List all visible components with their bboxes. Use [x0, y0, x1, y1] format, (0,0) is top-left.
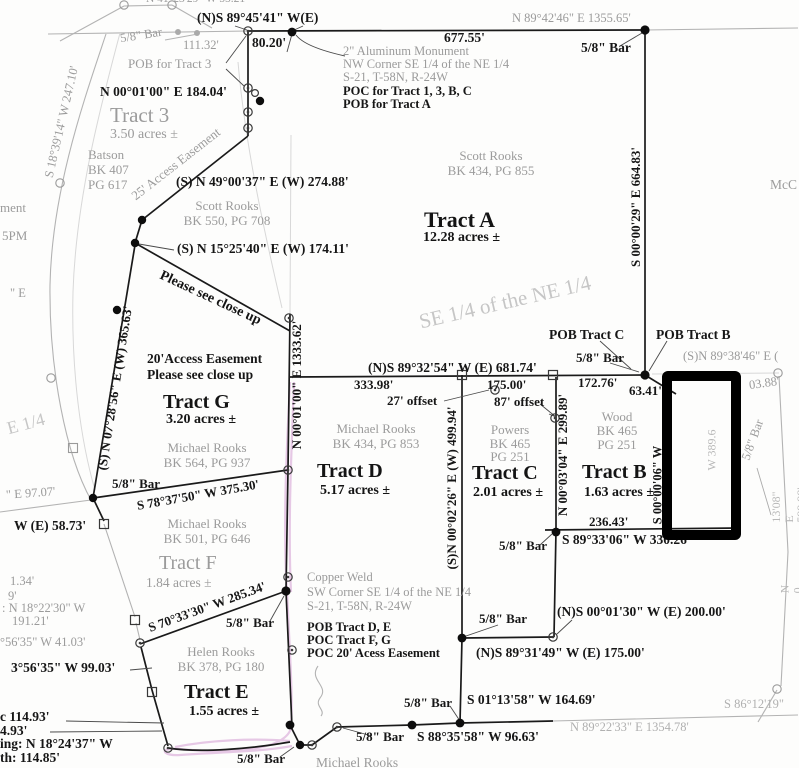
note-access-easement-20: 20'Access Easement Please see close up: [147, 351, 262, 382]
label-bar-top-right: 5/8" Bar: [581, 41, 631, 55]
owner-helen-rooks: Helen Rooks BK 378, PG 180: [167, 645, 275, 674]
note-poc-pob: POC for Tract 1, 3, B, C POB for Tract A: [343, 85, 472, 111]
label-tract3: Tract 3: [110, 104, 169, 126]
label-tract-f-acres: 1.84 acres ±: [146, 576, 212, 590]
label-bearing-ns000130: (N)S 00°01'30" W (E) 200.00': [557, 605, 726, 619]
fragment-ment: ment: [0, 201, 26, 215]
label-tract-f: Tract F: [159, 553, 217, 574]
label-distance-11132: 111.32': [183, 39, 219, 52]
label-bearing-n000100-1333: N 00°01'00" E 1333.62': [290, 321, 304, 450]
label-bearing-ns893149: (N)S 89°31'49" W (E) 175.00': [476, 646, 645, 660]
label-offset-87: 87' offset: [494, 395, 544, 409]
label-tract-a: Tract A: [424, 208, 495, 231]
label-distance-17276: 172.76': [578, 376, 617, 390]
note-pob-tract-de: POB Tract D, E POC Tract F, G POC 20' Ac…: [307, 621, 440, 660]
fragment-5635-41: °56'35" W 41.03': [0, 636, 85, 649]
label-distance-23643: 236.43': [589, 515, 628, 529]
label-tract-b-acres: 1.63 acres ±: [584, 486, 654, 501]
label-bar-tract-g: 5/8" Bar: [112, 477, 160, 491]
owner-scott-rooks-434: Scott Rooks BK 434, PG 855: [440, 149, 542, 178]
fragment-5pm: 5PM: [2, 229, 27, 243]
note-aluminum-monument: 2" Aluminum Monument NW Corner SE 1/4 of…: [343, 45, 509, 84]
owner-batson: Batson BK 407 PG 617: [88, 147, 129, 192]
label-bearing-s883558: S 88°35'58" W 96.63': [417, 730, 539, 744]
label-bearing-w5873: W (E) 58.73': [14, 519, 86, 533]
label-tract-g-acres: 3.20 acres ±: [166, 413, 236, 428]
label-bearing-n41: N 41°23'29" W 55.21': [146, 0, 247, 5]
owner-michael-rooks-bottom: Michael Rooks: [316, 756, 398, 768]
thick-black-rectangle-annotation: [662, 371, 741, 540]
label-tract-e: Tract E: [184, 682, 249, 703]
label-tract-c-acres: 2.01 acres ±: [473, 486, 543, 501]
label-bar-b2: 5/8" Bar: [237, 752, 285, 766]
fragment-s861219: S 86°12'19": [724, 698, 784, 711]
fragment-mcc: McC: [770, 178, 797, 192]
label-distance-33398: 333.98': [354, 378, 393, 392]
label-tract-e-acres: 1.55 acres ±: [189, 705, 259, 720]
fragment-e: " E: [10, 287, 26, 300]
fragment-e59998: 13'08" E 599.98': [770, 487, 799, 522]
owner-wood: Wood BK 465 PG 251: [594, 410, 640, 452]
label-distance-8020: 80.20': [252, 36, 286, 50]
label-distance-17500: 175.00': [487, 378, 526, 392]
owner-powers: Powers BK 465 PG 251: [486, 423, 534, 464]
label-tract-g: Tract G: [163, 392, 230, 413]
note-pob-tract3: POB for Tract 3: [128, 57, 211, 71]
fragment-19121: 191.21': [12, 615, 49, 628]
label-bearing-sn893846: (S)N 89°38'46" E (: [683, 350, 778, 363]
fragment-curve-length: th: 114.85': [0, 751, 60, 765]
label-bearing-ns893254: (N)S 89°32'54" W (E) 681.74': [368, 361, 537, 375]
label-bearing-s035635: 3°56'35" W 99.03': [11, 661, 115, 675]
label-bearing-s490037: (S) N 49°00'37" E (W) 274.88': [176, 175, 349, 189]
label-tract-b: Tract B: [582, 462, 647, 483]
label-bearing-s011358: S 01°13'58" W 164.69': [467, 693, 596, 707]
label-offset-27: 27' offset: [387, 394, 437, 408]
fragment-134: 1.34': [10, 575, 34, 588]
label-bar-tract-b-sw: 5/8" Bar: [499, 539, 547, 553]
label-distance-6341: 63.41': [629, 384, 662, 398]
label-bearing-s152540: (S) N 15°25'40" E (W) 174.11': [177, 242, 349, 256]
label-bearing-sn000226: (S)N 00°02'26" E (W) 499.94': [445, 407, 459, 570]
label-tract-d: Tract D: [317, 461, 383, 482]
owner-scott-rooks-550: Scott Rooks BK 550, PG 708: [176, 199, 278, 228]
label-tract-c: Tract C: [472, 463, 538, 484]
label-bearing-n000100-184: N 00°01'00" E 184.04': [100, 85, 227, 99]
fragment-n0: N 0: [778, 585, 799, 594]
note-pob-tract-b: POB Tract B: [656, 328, 731, 342]
label-bar-b1: 5/8" Bar: [356, 730, 404, 744]
label-bar-d1: 5/8" Bar: [479, 612, 527, 626]
label-bar-e: 5/8" Bar: [226, 616, 274, 630]
label-bar-d2: 5/8" Bar: [404, 696, 452, 710]
survey-plat-canvas: N 41°23'29" W 55.21' (N)S 89°45'41" W(E)…: [0, 0, 799, 768]
label-bearing-n894246: N 89°42'46" E 1355.65': [512, 12, 631, 25]
note-pob-tract-c: POB Tract C: [549, 328, 624, 342]
label-tract3-acres: 3.50 acres ±: [110, 128, 178, 143]
label-bearing-ns894541: (N)S 89°45'41" W(E): [197, 11, 318, 25]
label-bearing-s000029: S 00°00'29" E 664.83': [629, 147, 643, 267]
label-tract-d-acres: 5.17 acres ±: [320, 484, 390, 499]
label-bearing-n000304: N 00°03'04" E 299.89': [556, 394, 570, 516]
label-tract-a-acres: 12.28 acres ±: [423, 231, 500, 246]
label-bar-center: 5/8" Bar: [576, 351, 624, 365]
label-bearing-n892233: N 89°22'33" E 1354.78': [570, 721, 689, 734]
owner-michael-rooks-564: Michael Rooks BK 564, PG 937: [157, 440, 257, 470]
owner-michael-rooks-434: Michael Rooks BK 434, PG 853: [328, 421, 424, 451]
note-copper-weld: Copper Weld SW Corner SE 1/4 of the NE 1…: [307, 570, 471, 614]
owner-michael-rooks-501: Michael Rooks BK 501, PG 646: [157, 516, 257, 546]
